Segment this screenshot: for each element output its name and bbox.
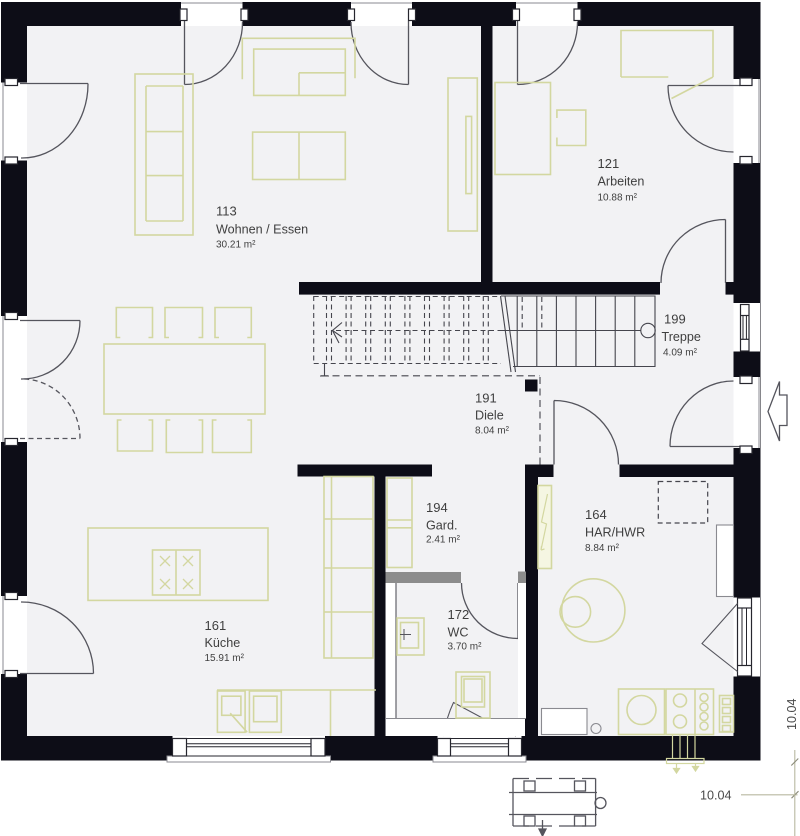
svg-text:10.88 m²: 10.88 m²: [598, 193, 638, 204]
svg-text:WC: WC: [448, 626, 469, 640]
svg-text:8.84 m²: 8.84 m²: [585, 543, 620, 554]
svg-text:10.04: 10.04: [700, 789, 732, 803]
svg-text:4.09 m²: 4.09 m²: [663, 347, 698, 358]
svg-text:Wohnen / Essen: Wohnen / Essen: [216, 222, 308, 236]
svg-text:3.70 m²: 3.70 m²: [448, 642, 483, 653]
svg-text:HAR/HWR: HAR/HWR: [585, 526, 645, 540]
svg-text:194: 194: [426, 500, 448, 515]
svg-text:172: 172: [448, 607, 470, 622]
svg-text:Gard.: Gard.: [426, 519, 458, 533]
svg-text:10.04: 10.04: [785, 698, 799, 730]
svg-text:191: 191: [475, 390, 497, 405]
svg-text:Arbeiten: Arbeiten: [598, 175, 645, 189]
svg-text:8.04 m²: 8.04 m²: [475, 426, 510, 437]
svg-text:30.21 m²: 30.21 m²: [216, 239, 256, 250]
svg-text:161: 161: [205, 618, 227, 633]
svg-text:Diele: Diele: [475, 409, 504, 423]
svg-text:121: 121: [598, 156, 620, 171]
svg-text:199: 199: [664, 312, 686, 327]
svg-text:2.41 m²: 2.41 m²: [426, 535, 461, 546]
svg-text:164: 164: [585, 507, 607, 522]
svg-text:Treppe: Treppe: [662, 330, 701, 344]
svg-text:113: 113: [216, 204, 237, 219]
svg-text:Küche: Küche: [205, 636, 241, 650]
svg-text:15.91 m²: 15.91 m²: [205, 653, 245, 664]
